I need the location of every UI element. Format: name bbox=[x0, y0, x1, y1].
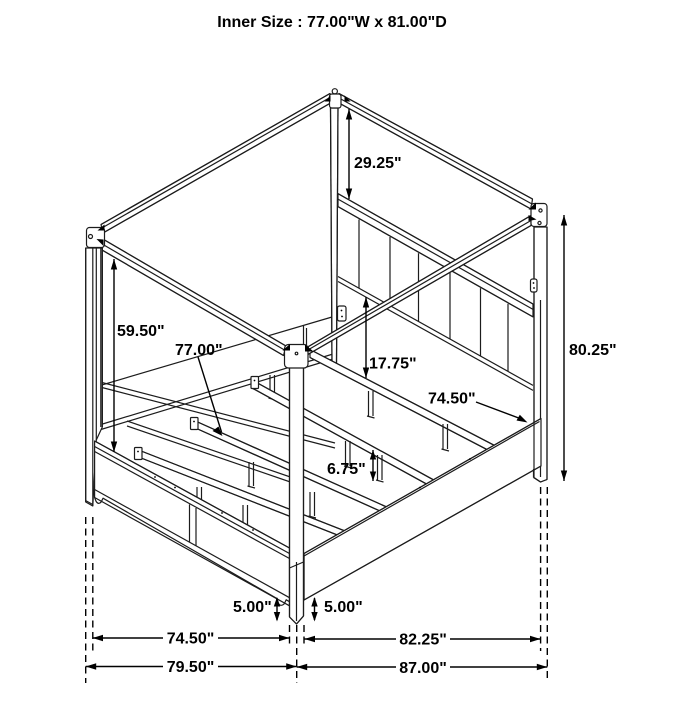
svg-text:5.00": 5.00" bbox=[324, 599, 363, 616]
svg-text:77.00": 77.00" bbox=[175, 342, 223, 359]
svg-text:80.25": 80.25" bbox=[569, 342, 617, 359]
svg-text:82.25": 82.25" bbox=[399, 632, 447, 649]
svg-text:79.50": 79.50" bbox=[167, 659, 215, 676]
svg-text:74.50": 74.50" bbox=[428, 391, 476, 408]
svg-text:17.75": 17.75" bbox=[369, 356, 417, 373]
svg-text:6.75": 6.75" bbox=[327, 461, 366, 478]
svg-text:87.00": 87.00" bbox=[399, 660, 447, 677]
svg-text:59.50": 59.50" bbox=[117, 323, 165, 340]
svg-text:Inner Size : 77.00"W x 81.00"D: Inner Size : 77.00"W x 81.00"D bbox=[217, 14, 447, 31]
svg-text:74.50": 74.50" bbox=[167, 631, 215, 648]
svg-text:29.25": 29.25" bbox=[354, 155, 402, 172]
svg-text:5.00": 5.00" bbox=[233, 599, 272, 616]
